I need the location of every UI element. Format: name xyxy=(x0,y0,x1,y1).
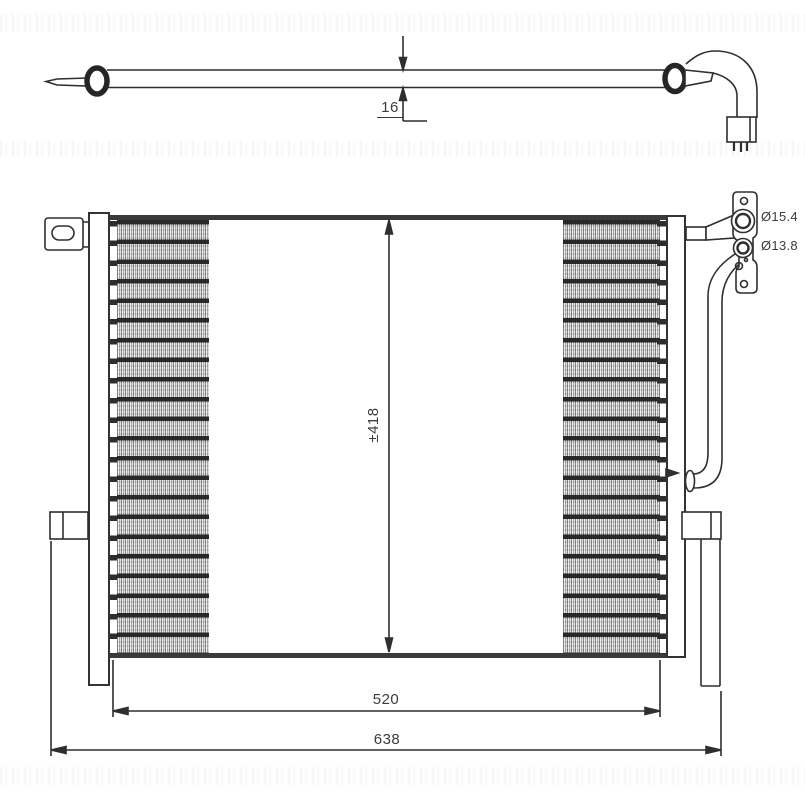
lower-pipe xyxy=(701,539,720,686)
dimension-638 xyxy=(51,541,721,756)
pipe-clamp-right xyxy=(682,512,721,539)
tube-end-fitting-right xyxy=(665,66,685,92)
dimension-418 xyxy=(386,220,393,652)
port-link xyxy=(706,215,734,240)
condenser-technical-drawing: 16 ±418 520 638 Ø15.4 Ø13.8 xyxy=(0,0,805,805)
connector-pins xyxy=(734,142,747,152)
port-upper-diameter-label: Ø15.4 xyxy=(761,209,805,224)
dim-418-label: ±418 xyxy=(365,397,383,453)
pipe-elbow-inner xyxy=(693,453,708,474)
side-plate-marker xyxy=(666,469,678,477)
dimension-520 xyxy=(113,660,660,717)
tube-flattened-section xyxy=(685,70,713,86)
dim-638-label: 638 xyxy=(367,731,407,748)
inlet-tube-top-view xyxy=(46,36,757,152)
mounting-bracket-bottom-left xyxy=(50,512,88,539)
connector-plug xyxy=(727,117,756,142)
elbow-inner xyxy=(713,73,737,118)
tube-end-fitting-left xyxy=(87,68,107,94)
port-plate xyxy=(732,192,758,293)
tube-left-stub xyxy=(46,78,88,86)
drawing-linework xyxy=(0,0,805,805)
right-side-plumbing xyxy=(666,192,757,686)
dim-16-label: 16 xyxy=(377,99,403,118)
port-lower-diameter-label: Ø13.8 xyxy=(761,238,805,253)
pipe-open-end xyxy=(686,471,695,492)
dimension-16 xyxy=(400,36,428,121)
outlet-fitting xyxy=(686,227,706,240)
mounting-bracket-top-left xyxy=(45,218,88,250)
dim-520-label: 520 xyxy=(366,691,406,708)
